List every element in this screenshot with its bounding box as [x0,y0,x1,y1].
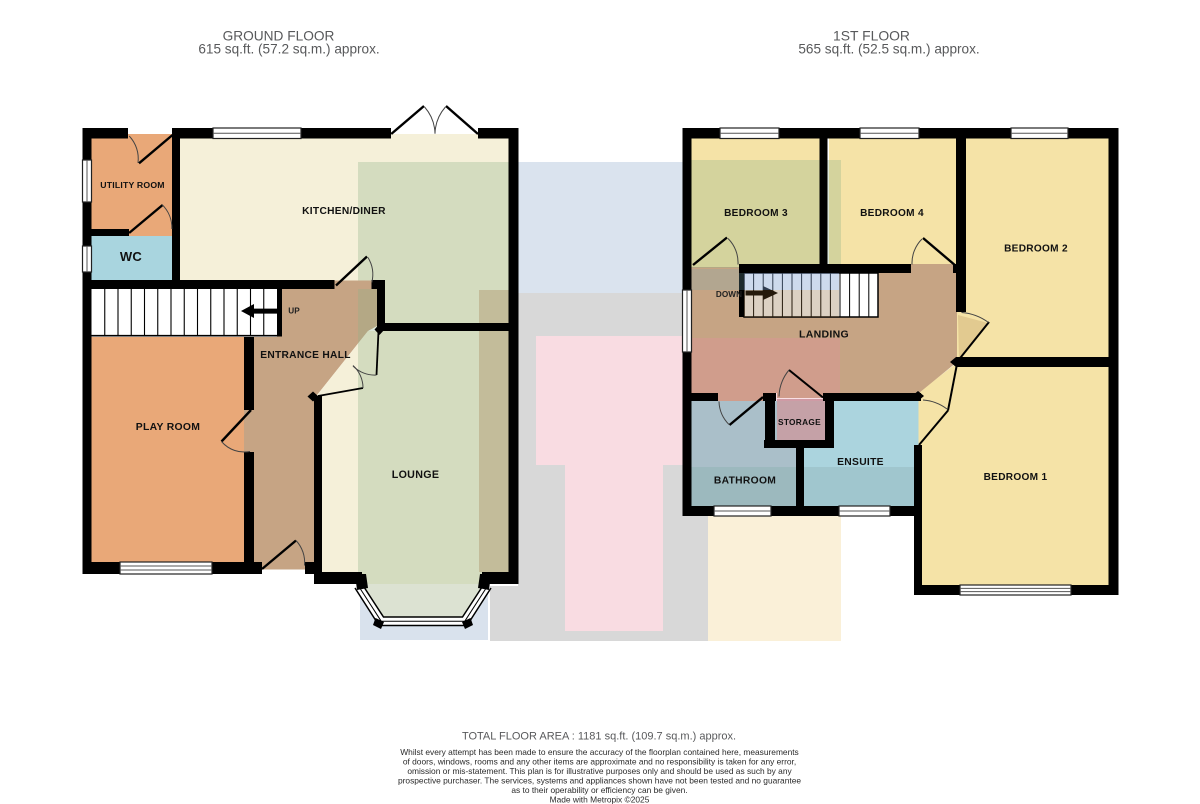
svg-text:BEDROOM 3: BEDROOM 3 [724,208,788,219]
svg-text:615 sq.ft. (57.2 sq.m.) approx: 615 sq.ft. (57.2 sq.m.) approx. [198,42,379,57]
svg-text:ENSUITE: ENSUITE [837,457,884,468]
svg-text:DOWN: DOWN [716,290,742,299]
svg-text:BATHROOM: BATHROOM [714,475,776,486]
svg-text:LOUNGE: LOUNGE [392,469,440,481]
svg-text:BEDROOM 1: BEDROOM 1 [984,472,1048,483]
svg-text:565 sq.ft. (52.5 sq.m.) approx: 565 sq.ft. (52.5 sq.m.) approx. [798,42,979,57]
svg-text:UP: UP [288,307,300,316]
svg-text:STORAGE: STORAGE [778,417,821,427]
svg-text:TOTAL FLOOR AREA : 1181 sq.ft.: TOTAL FLOOR AREA : 1181 sq.ft. (109.7 sq… [462,731,736,743]
svg-text:KITCHEN/DINER: KITCHEN/DINER [302,206,386,217]
svg-text:WC: WC [120,249,143,264]
svg-text:BEDROOM 2: BEDROOM 2 [1004,244,1068,255]
svg-text:LANDING: LANDING [799,329,849,341]
svg-text:UTILITY ROOM: UTILITY ROOM [100,180,165,190]
svg-text:ENTRANCE HALL: ENTRANCE HALL [260,350,351,361]
svg-text:PLAY ROOM: PLAY ROOM [136,422,200,433]
svg-text:Made with Metropix ©2025: Made with Metropix ©2025 [550,794,650,804]
svg-text:BEDROOM 4: BEDROOM 4 [860,208,924,219]
